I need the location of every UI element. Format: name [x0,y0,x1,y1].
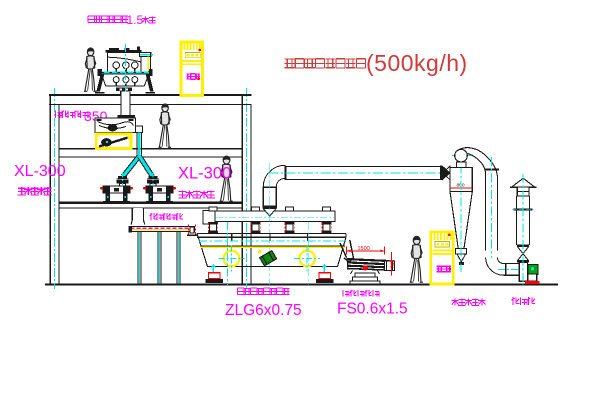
svg-text:XL-300: XL-300 [14,163,66,180]
svg-text:1500: 1500 [358,246,370,252]
svg-text:(500kg/h): (500kg/h) [366,50,468,76]
svg-text:ZLG6x0.75: ZLG6x0.75 [225,302,302,319]
svg-text:345: 345 [391,259,397,268]
svg-text:1.5: 1.5 [127,13,144,27]
svg-text:FS0.6x1.5: FS0.6x1.5 [337,301,408,318]
svg-text:XL-300: XL-300 [178,165,231,183]
